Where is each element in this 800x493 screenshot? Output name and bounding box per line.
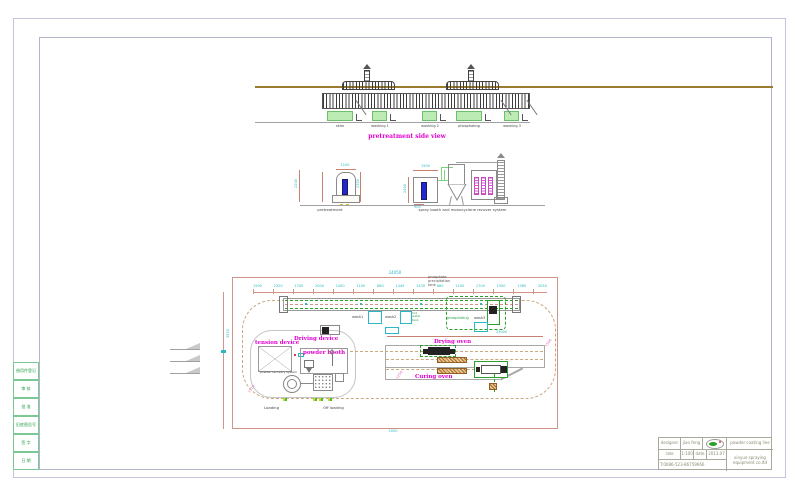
oven-fan bbox=[428, 347, 450, 355]
note-line: tank bbox=[428, 284, 450, 288]
stack-base bbox=[494, 197, 508, 204]
rate-label-cell: rate bbox=[659, 450, 681, 460]
arrow-line bbox=[170, 373, 200, 374]
pretreat-front-label: pretreatment bbox=[305, 208, 355, 212]
wash2-tank bbox=[400, 311, 412, 324]
pump-pair bbox=[385, 327, 399, 334]
overhead-duct bbox=[456, 162, 500, 163]
arrow-line bbox=[170, 349, 200, 350]
fan-nub bbox=[501, 366, 507, 373]
strip-text: 签 字 bbox=[21, 441, 30, 445]
ceiling-line bbox=[255, 86, 773, 88]
loading-label: Loading bbox=[264, 406, 279, 410]
date-value: 2013.07 bbox=[708, 452, 725, 456]
note-line: tank bbox=[412, 319, 421, 322]
hanger-marker bbox=[319, 398, 323, 401]
cad-sheet: 借用件登记 审 核 批 准 旧底图总号 签 字 日 期 skim bbox=[0, 0, 800, 493]
dim-line bbox=[408, 177, 409, 203]
dim-value: 2000 bbox=[378, 430, 408, 434]
driving-device-label: Driving device bbox=[294, 336, 338, 342]
cyclone-body bbox=[448, 164, 465, 185]
designer-value-cell: jiao feng bbox=[681, 438, 703, 450]
dim-line bbox=[223, 292, 224, 429]
offloading-label: Off loading bbox=[323, 406, 344, 410]
pump-icon bbox=[522, 114, 528, 121]
spray-front-label: spray booth and monocyclone recover syst… bbox=[395, 208, 530, 212]
designer-label-cell: designer bbox=[659, 438, 681, 450]
nozzle-dot bbox=[360, 303, 362, 305]
hanger-marker bbox=[328, 398, 332, 401]
strip-cell: 日 期 bbox=[13, 452, 39, 470]
rate-value-cell: 1:100 bbox=[681, 450, 694, 460]
dim-value: 1445 bbox=[395, 284, 404, 288]
recovery-cyclone-inner bbox=[287, 379, 297, 389]
designer-value: jiao feng bbox=[683, 441, 700, 445]
date-label: date bbox=[695, 452, 704, 456]
rate-value: 1:100 bbox=[681, 452, 693, 456]
recovery-duct bbox=[301, 383, 313, 384]
wash3-label: wash3 bbox=[474, 317, 485, 321]
dim-value: 3550 bbox=[227, 329, 231, 338]
wash1-tank bbox=[368, 311, 382, 324]
dim-value: 2320 bbox=[274, 284, 283, 288]
drip-mark bbox=[340, 204, 349, 205]
ground-line bbox=[300, 205, 545, 206]
strip-cell: 借用件登记 bbox=[13, 362, 39, 380]
company-cell: xinyue spraying equipment co.ltd bbox=[727, 450, 773, 471]
workpiece bbox=[421, 182, 427, 200]
exhaust-riser bbox=[468, 70, 474, 82]
pretreatment-tunnel bbox=[322, 93, 530, 109]
tank-label: washing 2 bbox=[410, 125, 450, 129]
strip-text: 日 期 bbox=[21, 459, 30, 463]
tank-label: phosphating bbox=[449, 125, 489, 129]
pump-icon bbox=[485, 114, 491, 121]
ground-line bbox=[255, 122, 530, 123]
dimension-chain: 1500232017002000145011008801445143588011… bbox=[253, 284, 547, 288]
dim-value: 1100 bbox=[455, 284, 464, 288]
dim-value: 2400 bbox=[404, 184, 408, 193]
nozzle-dot bbox=[420, 303, 422, 305]
arrow-line bbox=[170, 361, 200, 362]
nozzle-dot bbox=[305, 303, 307, 305]
tank-skim bbox=[327, 111, 353, 121]
exhaust-arrow-icon bbox=[497, 153, 505, 158]
dim-value: 1500 bbox=[253, 284, 262, 288]
dim-line bbox=[387, 336, 543, 337]
curing-oven-label: Curing oven bbox=[415, 374, 453, 380]
dim-value: 1700 bbox=[476, 284, 485, 288]
title-block: designer jiao feng powder coating line r… bbox=[658, 437, 772, 470]
strip-cell: 审 核 bbox=[13, 380, 39, 398]
pump-icon bbox=[390, 114, 396, 121]
gun-stand bbox=[332, 353, 333, 366]
arrow-flag-icon bbox=[186, 355, 200, 361]
arrow-flag-icon bbox=[186, 367, 200, 373]
cyan-tick bbox=[221, 350, 226, 353]
powder-recovery-label: powder recovery system bbox=[260, 371, 297, 374]
exhaust-duct bbox=[342, 81, 395, 90]
strip-cell: 签 字 bbox=[13, 434, 39, 452]
pretreat-base bbox=[332, 195, 360, 203]
workpiece bbox=[342, 179, 348, 195]
dim-value: 2050 bbox=[538, 284, 547, 288]
dim-value: 2200 bbox=[295, 179, 299, 188]
fan-nub bbox=[450, 349, 455, 354]
company-name-line: equipment co.ltd bbox=[733, 461, 767, 465]
dim-value: 1700 bbox=[294, 284, 303, 288]
hanger-marker bbox=[283, 398, 287, 401]
wash3-tank bbox=[474, 322, 488, 332]
strip-text: 审 核 bbox=[21, 387, 30, 391]
tank-label: washing 1 bbox=[360, 125, 400, 129]
company-logo-icon bbox=[706, 439, 724, 449]
dim-value: 1500 bbox=[497, 284, 506, 288]
recovery-filter bbox=[313, 374, 333, 391]
dim-value: 880 bbox=[377, 284, 384, 288]
red-mark bbox=[294, 354, 296, 356]
dim-value: 2000 bbox=[315, 284, 324, 288]
dim-value: 1100 bbox=[330, 164, 360, 168]
strip-text: 批 准 bbox=[21, 405, 30, 409]
dim-value: 2350 bbox=[357, 179, 361, 188]
powder-hopper bbox=[304, 360, 314, 368]
hopper-funnel bbox=[306, 368, 312, 373]
dim-value: 23000 bbox=[496, 331, 507, 335]
tank-phosphating bbox=[456, 111, 482, 121]
tunnel-end-box bbox=[279, 296, 288, 313]
curing-fan bbox=[481, 365, 501, 374]
rate-label: rate bbox=[665, 452, 673, 456]
product-cell: powder coating line bbox=[727, 438, 773, 450]
dim-value: 1500 bbox=[413, 165, 438, 169]
dim-value: 1360 bbox=[517, 284, 526, 288]
dim-line bbox=[413, 170, 438, 171]
burner-box bbox=[437, 357, 467, 363]
date-value-cell: 2013.07 bbox=[707, 450, 727, 460]
burner-unit bbox=[489, 306, 497, 314]
tank-label: skim bbox=[320, 125, 360, 129]
exhaust-arrow-icon bbox=[363, 64, 371, 69]
filter-cartridge bbox=[481, 177, 486, 195]
filter-cartridge bbox=[488, 177, 493, 195]
powder-duct bbox=[441, 168, 442, 181]
dim-value: 1435 bbox=[416, 284, 425, 288]
hanger-marker bbox=[313, 398, 317, 401]
plan-note: phosphate precipitation tank bbox=[428, 276, 450, 288]
tank-washing1 bbox=[372, 111, 387, 121]
side-view-title: pretreatment side view bbox=[342, 134, 472, 141]
drive-motor bbox=[322, 327, 329, 334]
phone-cell: T:0086-523-86759666 bbox=[659, 460, 727, 471]
designer-label: designer bbox=[661, 441, 678, 445]
tank-washing2 bbox=[422, 111, 437, 121]
strip-cell: 批 准 bbox=[13, 398, 39, 416]
arrow-flag-icon bbox=[186, 343, 200, 349]
exhaust-stack bbox=[497, 160, 505, 200]
dim-value: 1100 bbox=[356, 284, 365, 288]
recovery-fan bbox=[335, 373, 344, 382]
tank-washing3 bbox=[504, 111, 519, 121]
product-name: powder coating line bbox=[730, 441, 770, 445]
overall-dim-value: 24050 bbox=[375, 271, 415, 275]
exhaust-duct bbox=[446, 81, 499, 90]
dim-chain-line bbox=[253, 292, 547, 293]
powder-duct bbox=[438, 180, 448, 181]
exhaust-riser bbox=[364, 70, 370, 82]
strip-text: 旧底图总号 bbox=[16, 423, 36, 427]
phone-number: T:0086-523-86759666 bbox=[660, 463, 704, 467]
hot-water-tank-note: hot water tank bbox=[412, 312, 421, 322]
filter-cartridge bbox=[474, 177, 479, 195]
strip-cell: 旧底图总号 bbox=[13, 416, 39, 434]
powder-duct bbox=[444, 170, 445, 181]
pump-icon bbox=[440, 114, 446, 121]
powder-booth-label: powder booth bbox=[303, 350, 345, 356]
oven-exhaust-box bbox=[489, 383, 497, 390]
dim-line bbox=[299, 170, 300, 202]
tension-device-unit bbox=[258, 346, 292, 372]
fan-nub bbox=[423, 349, 428, 354]
dim-value: 1450 bbox=[336, 284, 345, 288]
strip-text: 借用件登记 bbox=[16, 369, 36, 373]
tank-label: washing 3 bbox=[492, 125, 532, 129]
wash1-label: wash1 bbox=[352, 316, 363, 320]
exhaust-arrow-icon bbox=[467, 64, 475, 69]
tunnel-end-box bbox=[512, 296, 521, 313]
pump-icon bbox=[356, 114, 362, 121]
dim-line bbox=[322, 172, 323, 202]
phosphating-label: phosphating bbox=[447, 317, 469, 321]
fan-nub bbox=[476, 367, 480, 372]
date-label-cell: date bbox=[694, 450, 707, 460]
wash2-label: wash2 bbox=[385, 316, 396, 320]
dim-line bbox=[336, 169, 356, 170]
logo-cell bbox=[703, 438, 727, 450]
